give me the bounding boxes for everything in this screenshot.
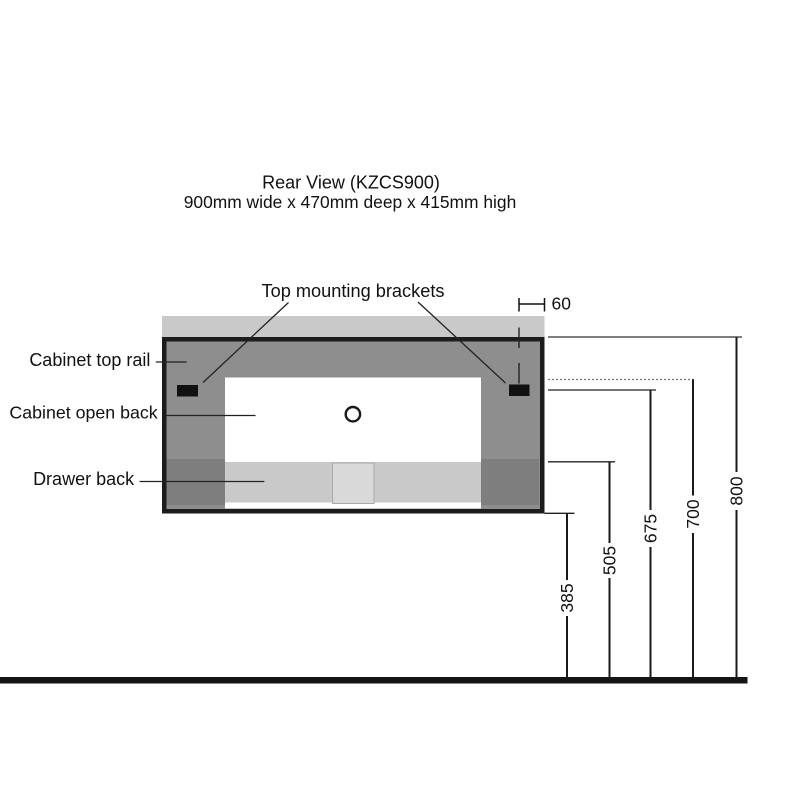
svg-text:Top mounting brackets: Top mounting brackets (262, 281, 445, 301)
svg-text:Rear View (KZCS900): Rear View (KZCS900) (262, 173, 440, 193)
svg-text:505: 505 (600, 546, 620, 575)
svg-text:60: 60 (552, 294, 572, 314)
svg-text:Drawer back: Drawer back (33, 469, 135, 489)
svg-text:700: 700 (683, 499, 703, 528)
svg-text:Cabinet open back: Cabinet open back (9, 402, 157, 422)
svg-text:Cabinet top rail: Cabinet top rail (29, 350, 150, 370)
svg-text:800: 800 (727, 476, 747, 505)
svg-text:385: 385 (557, 583, 577, 612)
svg-text:900mm wide x 470mm deep x 415m: 900mm wide x 470mm deep x 415mm high (184, 192, 517, 212)
svg-text:675: 675 (641, 514, 661, 543)
